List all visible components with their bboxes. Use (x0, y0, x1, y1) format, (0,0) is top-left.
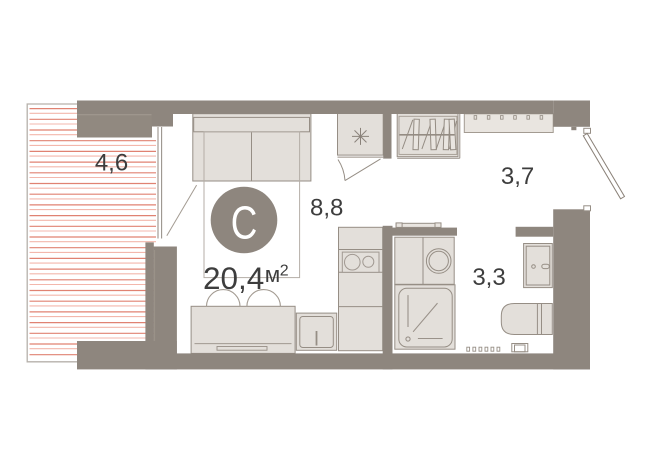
svg-text:C: C (231, 197, 258, 249)
svg-text:3,3: 3,3 (472, 264, 505, 291)
svg-text:4,6: 4,6 (95, 150, 128, 177)
svg-text:20,4: 20,4 (203, 260, 264, 296)
svg-text:3,7: 3,7 (501, 163, 534, 190)
svg-text:8,8: 8,8 (310, 195, 343, 222)
svg-text:2: 2 (280, 263, 289, 280)
svg-text:м: м (265, 262, 280, 287)
